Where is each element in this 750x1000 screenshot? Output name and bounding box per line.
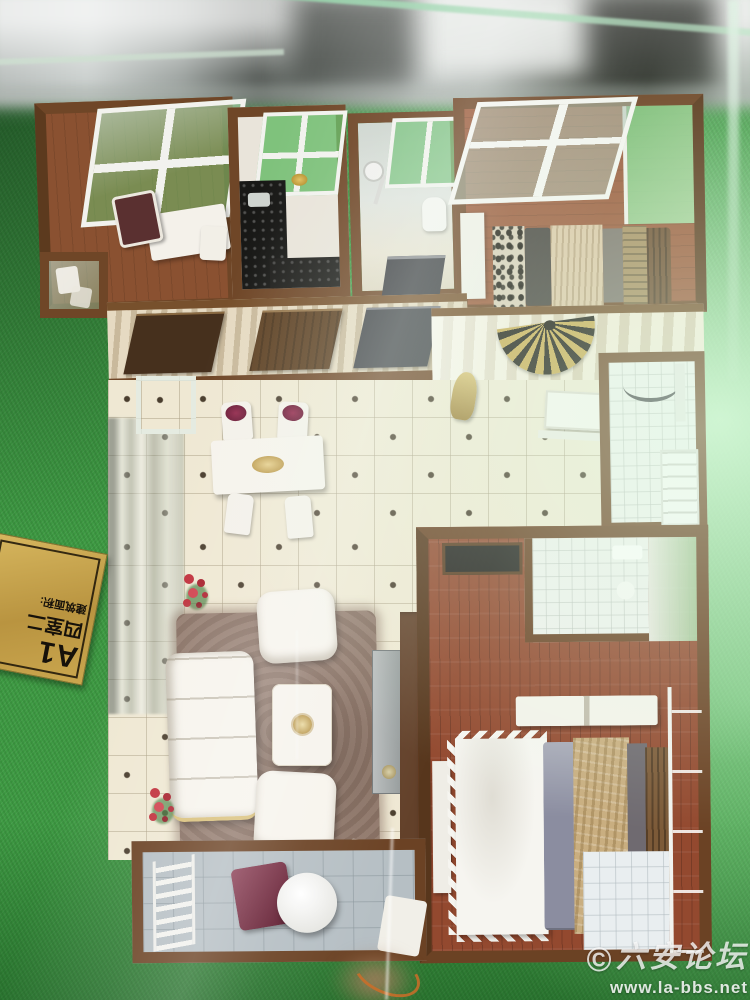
bedroom2-headboard: [646, 227, 671, 303]
ensuite-glass: [648, 537, 697, 641]
master-corner-tiles: [583, 851, 670, 950]
bedroom2-pillow: [524, 228, 551, 306]
door-panel: [353, 306, 440, 368]
flower-leaves: [152, 798, 174, 824]
kitchen-sink: [248, 193, 270, 208]
watermark-url: www.la-bbs.net: [586, 979, 748, 996]
flower-pot: [150, 788, 200, 848]
door-panel: [249, 309, 342, 371]
study-chair-white: [199, 226, 227, 261]
chair-cushion: [225, 404, 247, 421]
tv-inset: [442, 542, 522, 575]
toilet: [422, 197, 447, 232]
bedroom2-window: [448, 97, 638, 205]
leopard-rug: [492, 226, 525, 309]
flower-leaves: [186, 584, 208, 610]
watermark-site-name: ©六安论坛: [586, 943, 748, 977]
bedroom2-wardrobe: [460, 213, 485, 299]
shower-column: [675, 363, 686, 421]
ensuite-sink: [617, 581, 635, 599]
room-bathroom-1: [348, 111, 465, 302]
flower-blooms: [150, 788, 160, 798]
dining-chair: [284, 495, 314, 539]
dining-table: [211, 435, 326, 495]
watermark-site-text: 六安论坛: [616, 941, 748, 974]
corridor-wall: [107, 293, 469, 388]
kitchen-counter-bottom: [269, 257, 340, 289]
room-master-bedroom: [416, 525, 712, 964]
ensuite-fixture: [612, 545, 642, 559]
door-panel: [123, 312, 224, 375]
bedroom2-pad-grey: [602, 228, 623, 302]
dresser: [516, 695, 658, 726]
bedroom2-pad-tan: [622, 226, 647, 304]
radiator-knob: [382, 765, 396, 779]
flower-blooms: [184, 574, 194, 584]
dining-chair: [224, 493, 255, 536]
glass-reflection-line: [296, 630, 298, 760]
master-blanket: [455, 738, 549, 935]
dining-chair: [221, 401, 254, 441]
watermark: ©六安论坛 www.la-bbs.net: [586, 943, 748, 996]
small-glass-balcony: [136, 376, 196, 434]
model-photo: A1 四室二 建筑面积: ©六安论坛 www.la-bbs.net: [0, 0, 750, 1000]
copyright-icon: ©: [586, 941, 614, 979]
table-centerpiece: [252, 455, 285, 474]
bedroom2-quilt: [550, 225, 603, 308]
drying-rack: [153, 854, 196, 952]
bedroom2-corner-glass: [622, 105, 694, 224]
bedroom2-bed: [492, 223, 679, 308]
ensuite-bathroom: [524, 537, 649, 642]
annex-chair: [69, 285, 92, 308]
chair-cushion: [282, 404, 304, 421]
apartment-model: [0, 0, 750, 1000]
dining-chair: [277, 401, 309, 441]
shower-rail: [623, 368, 680, 403]
glass-annex: [40, 252, 108, 318]
balcony-round-table: [277, 872, 338, 933]
bathroom2-shelf: [660, 449, 699, 526]
room-kitchen: [228, 104, 351, 299]
coffee-table: [272, 684, 332, 766]
room-bedroom-2: [453, 94, 707, 316]
shower-head: [365, 163, 382, 180]
room-bathroom-2: [598, 351, 707, 533]
master-window-glass: [668, 687, 704, 953]
room-balcony: [131, 839, 426, 964]
